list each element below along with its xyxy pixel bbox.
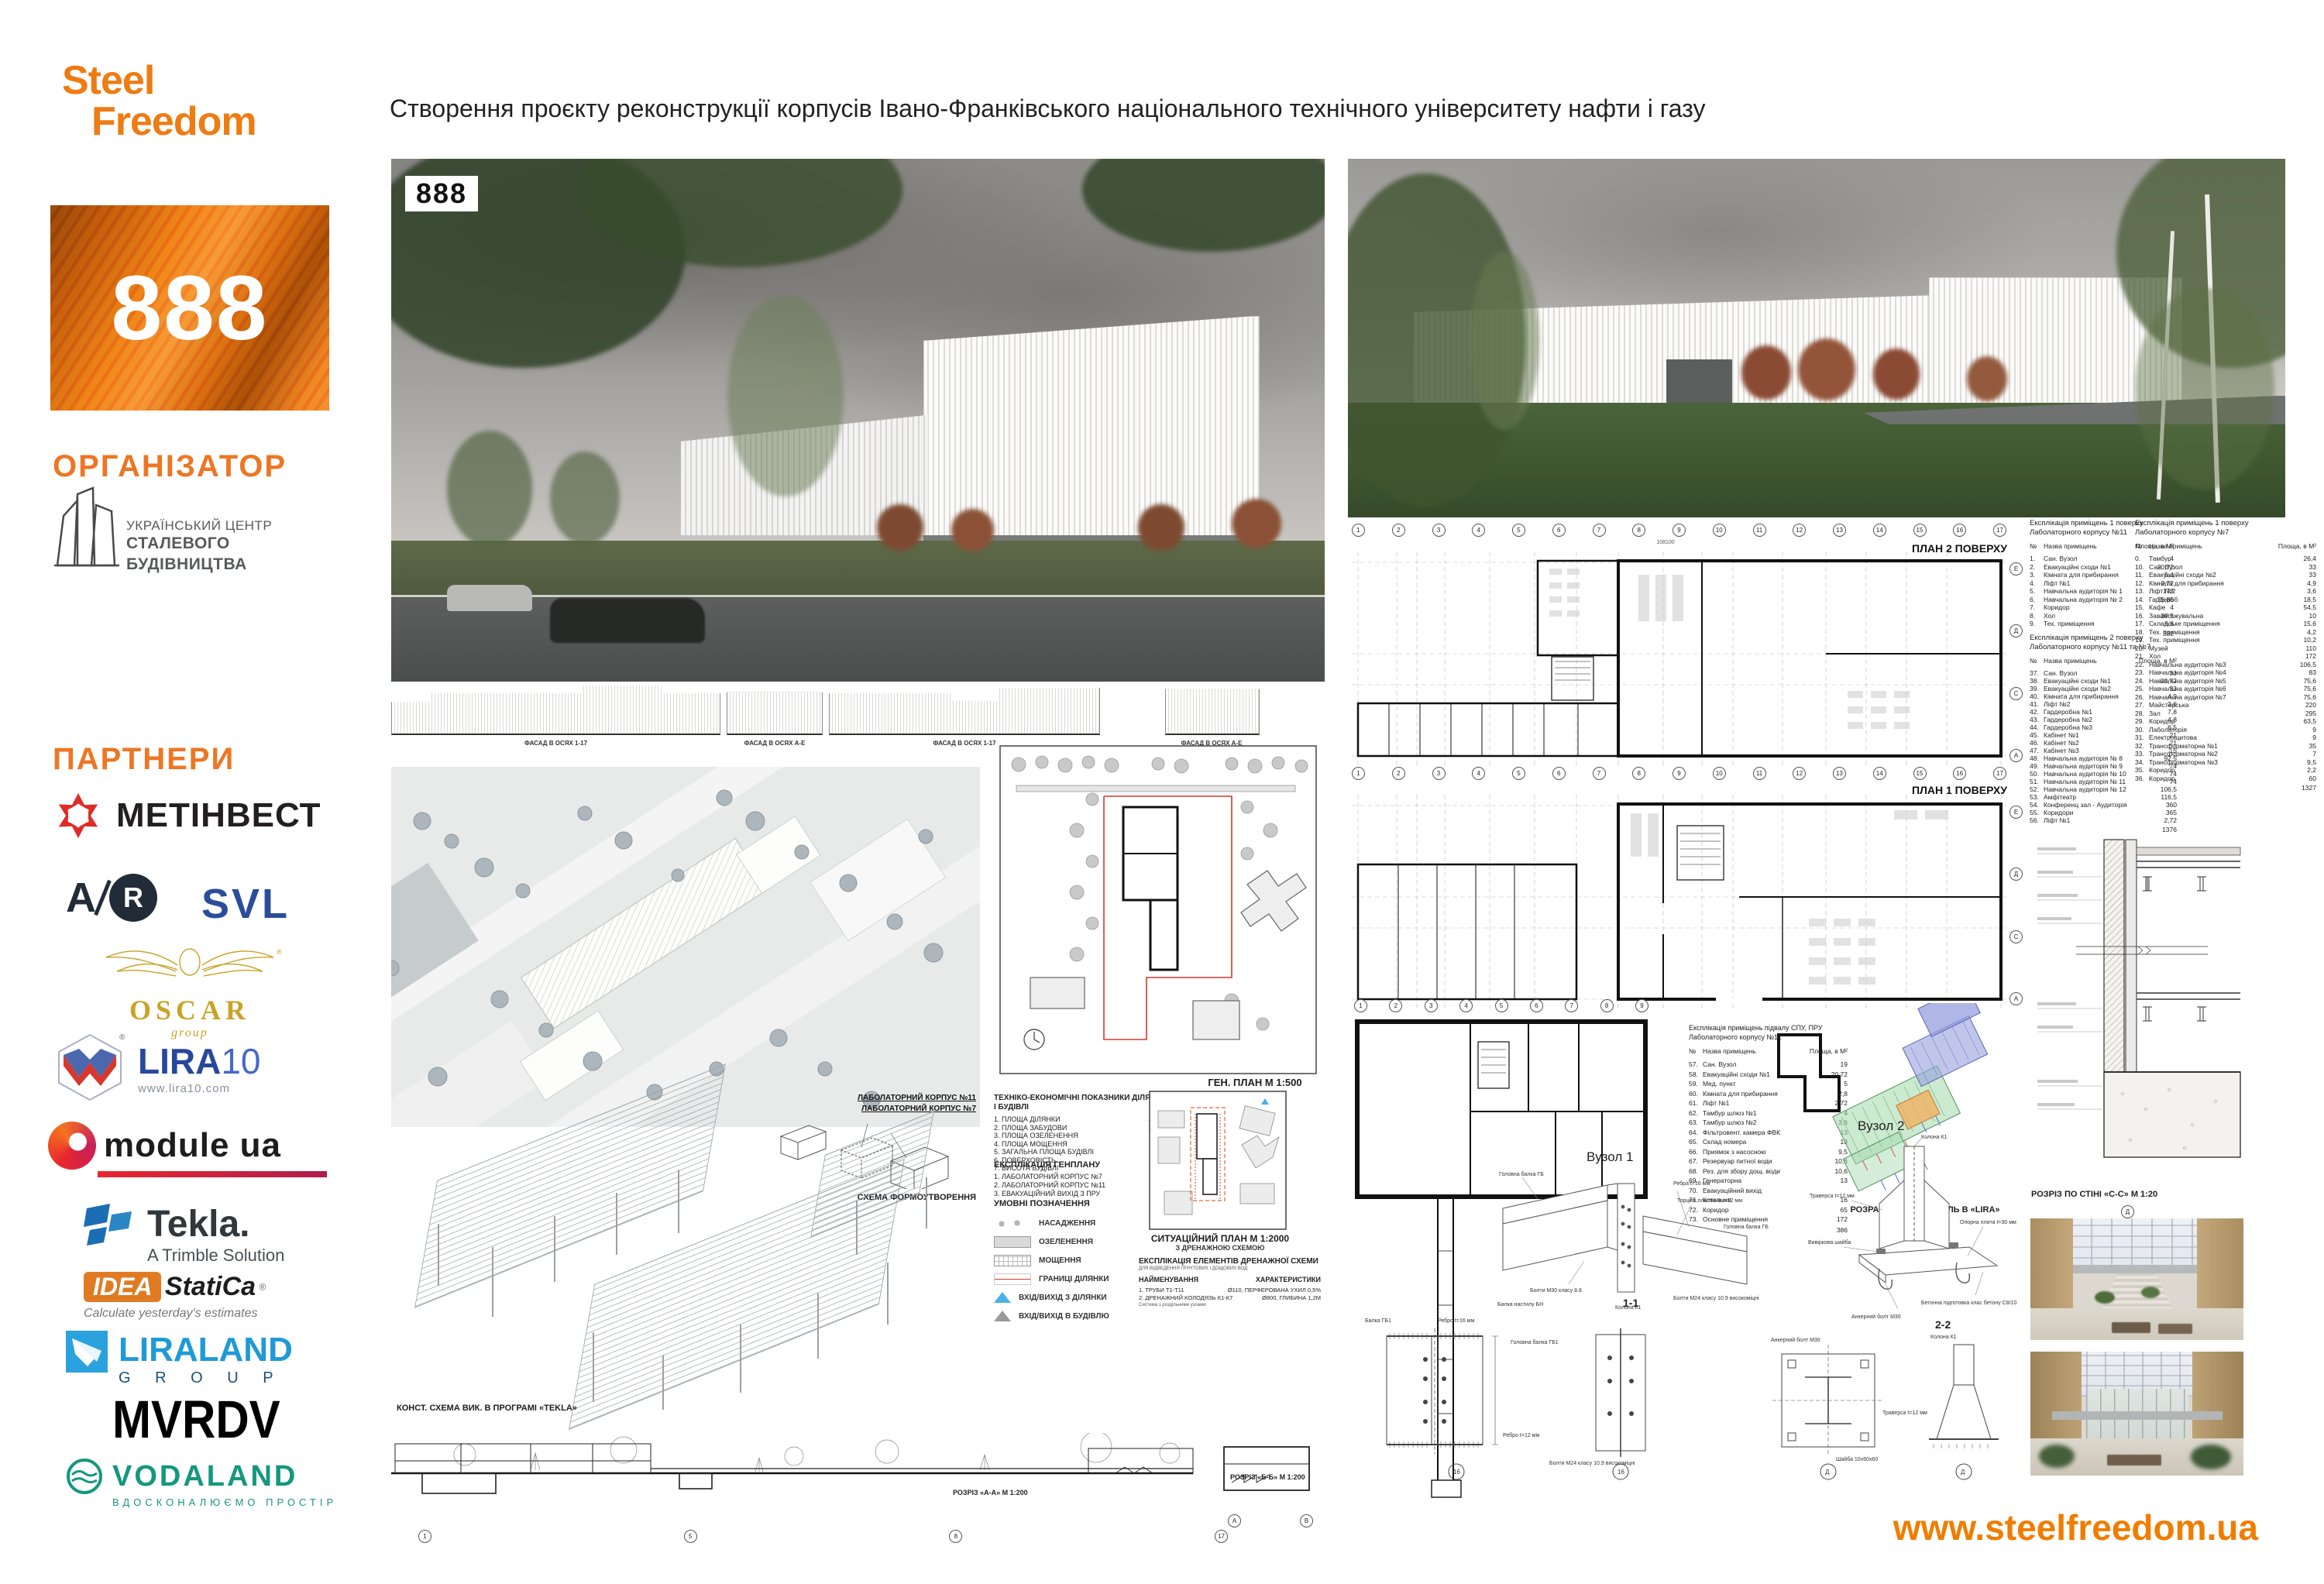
tree-small-2 bbox=[550, 452, 620, 545]
partner-ideastatica: IDEA StatiCa ® Calculate yesterday's est… bbox=[84, 1272, 266, 1321]
svg-text:Вивіркова шайба: Вивіркова шайба bbox=[1808, 1239, 1851, 1246]
plan1-grid-bubbles: 1234567891011121314151617 bbox=[1352, 767, 2006, 780]
general-plan-drawing bbox=[999, 745, 1317, 1074]
tree-mid bbox=[727, 295, 844, 497]
axonometric-site-model bbox=[391, 767, 980, 1127]
liraland-group-label: G R O U P bbox=[119, 1369, 293, 1387]
schedule-row: 45.Кабінет №121 bbox=[2030, 731, 2177, 739]
schedule-row: 56.Ліфт №12,72 bbox=[2030, 816, 2177, 824]
organizer-name: УКРАЇНСЬКИЙ ЦЕНТР СТАЛЕВОГО БУДІВНИЦТВА bbox=[126, 517, 272, 575]
drainage-row: 2. ДРЕНАЖНИЙ КОЛОДЯЗЬ К1-К7Ø800, ГЛИБИНА… bbox=[1139, 1294, 1321, 1302]
floor2-rows: 37.Сан. Вузол3338.Евакуаційні сходи №120… bbox=[2030, 669, 2177, 824]
schedule-row: 41.Ліфт №23,6 bbox=[2030, 700, 2177, 708]
schedule-row: 39.Евакуаційні сходи №233 bbox=[2030, 685, 2177, 692]
elevation-4: ФАСАД В ОСЯХ А-Е bbox=[1106, 682, 1317, 747]
legend-entry-building-icon bbox=[994, 1311, 1011, 1321]
organizer-line2: СТАЛЕВОГО bbox=[126, 534, 230, 552]
schedule-row: 38.Евакуаційні сходи №120,72 bbox=[2030, 677, 2177, 685]
liraland-label: LIRALAND bbox=[119, 1331, 293, 1369]
tekla-structural-scheme bbox=[391, 1108, 968, 1414]
render2-red-tree-2 bbox=[1798, 338, 1855, 400]
schedule-row: 37.Сан. Вузол33 bbox=[2030, 669, 2177, 677]
schedule-row: 11.Евакуаційні сходи №233 bbox=[2135, 571, 2316, 579]
svg-text:Балка настилу БН: Балка настилу БН bbox=[1497, 1302, 1543, 1307]
organizer-line3: БУДІВНИЦТВА bbox=[126, 555, 247, 573]
svg-text:Опорна плита t=30 мм: Опорна плита t=30 мм bbox=[1960, 1220, 2016, 1225]
schedule-row: 0.Тамбур26,4 bbox=[2135, 555, 2316, 563]
logo-line1: Steel bbox=[62, 58, 154, 103]
legend-swatch-trees bbox=[994, 1218, 1031, 1229]
schedule-row: 17.Складське приміщення15,6 bbox=[2135, 620, 2316, 628]
schedule-row: 49.Навчальна аудиторія № 974 bbox=[2030, 762, 2177, 770]
svg-text:Балка ГБ1: Балка ГБ1 bbox=[1365, 1318, 1391, 1324]
interior-render-2 bbox=[2030, 1352, 2243, 1476]
avr-circle-r: R bbox=[109, 874, 157, 922]
atrium1-bridge bbox=[2073, 1265, 2197, 1273]
tekla-scheme-caption: КОНСТ. СХЕМА ВИК. В ПРОГРАМІ «TEKLA» bbox=[397, 1404, 577, 1413]
svg-text:Болти М24 класу 10.9 високоміц: Болти М24 класу 10.9 високоміцні bbox=[1549, 1460, 1635, 1466]
tekla-icon bbox=[84, 1202, 135, 1246]
vodaland-tagline: ВДОСКОНАЛЮЄМО ПРОСТІР bbox=[112, 1496, 337, 1508]
svg-text:Ребро t=16 мм: Ребро t=16 мм bbox=[1438, 1318, 1474, 1324]
partner-oscar: ® OSCAR group bbox=[81, 947, 298, 1040]
plan1-letter-bubbles: ЕДСА bbox=[2009, 806, 2023, 1005]
organizer-line1: УКРАЇНСЬКИЙ ЦЕНТР bbox=[126, 517, 272, 534]
section-aa-drawing bbox=[391, 1433, 1352, 1526]
form-scheme-label-k11: ЛАБОЛАТОРНИЙ КОРПУС №11 bbox=[775, 1094, 976, 1102]
svg-text:Д: Д bbox=[1961, 1469, 1965, 1476]
svg-text:Траверса t=12 мм: Траверса t=12 мм bbox=[1810, 1194, 1855, 1199]
schedule-row: 46.Кабінет №221 bbox=[2030, 739, 2177, 747]
genplan-caption: ГЕН. ПЛАН М 1:500 bbox=[1177, 1077, 1332, 1088]
render2-tree-left2 bbox=[1470, 252, 1539, 430]
render2-red-tree-3 bbox=[1873, 349, 1920, 400]
elevation-1: ФАСАД В ОСЯХ 1-17 bbox=[391, 682, 720, 747]
partner-avr: A R bbox=[66, 874, 157, 922]
floor-plan-1-drawing bbox=[1352, 795, 2006, 1012]
section-bb-caption: РОЗРІЗ «Б-Б» М 1:200 bbox=[1230, 1473, 1305, 1481]
detail-22-label: 2-2 bbox=[1935, 1318, 1951, 1331]
red-tree-3 bbox=[1138, 504, 1184, 551]
drainage-note: Система з роздільними узлами bbox=[1139, 1303, 1321, 1307]
lira10-cube-icon: ® bbox=[54, 1032, 125, 1103]
steel-freedom-logo: Steel Freedom bbox=[62, 60, 256, 143]
elevation-3: ФАСАД В ОСЯХ 1-17 bbox=[829, 682, 1100, 747]
svg-text:Головна балка ГБ: Головна балка ГБ bbox=[1724, 1224, 1769, 1230]
atrium2-tables bbox=[2107, 1455, 2161, 1465]
plan2-grid-bubbles: 1234567891011121314151617 bbox=[1352, 524, 2006, 537]
tekla-sub: A Trimble Solution bbox=[147, 1246, 284, 1266]
wall-section-bubble: Д bbox=[2121, 1205, 2134, 1218]
render2-birch-leaves bbox=[2135, 288, 2274, 490]
schedule-row: 14.Гардероб18,5 bbox=[2135, 596, 2316, 604]
section-bb-bubbles: АВ bbox=[1228, 1514, 1313, 1527]
moduleua-label: module ua bbox=[104, 1126, 281, 1165]
legend-swatch-boundary bbox=[994, 1273, 1031, 1285]
red-tree-2 bbox=[951, 509, 994, 551]
oscar-label: OSCAR bbox=[81, 994, 298, 1026]
partner-liraland: LIRALAND G R O U P bbox=[66, 1331, 293, 1387]
render-team-overlay: 888 bbox=[405, 176, 478, 211]
avr-letter-a: A bbox=[66, 874, 96, 922]
svg-text:16: 16 bbox=[1453, 1469, 1460, 1476]
drainage-row: 1. ТРУБИ Т1-Т11Ø110, ПЕРФЕРОВАНА УХИЛ 0,… bbox=[1139, 1287, 1321, 1294]
partner-metinvest: МЕТІНВЕСТ bbox=[54, 792, 321, 840]
schedule-row: 52.Навчальна аудиторія № 12106,5 bbox=[2030, 785, 2177, 793]
situation-plan-caption: СИТУАЦІЙНИЙ ПЛАН М 1:2000 З ДРЕНАЖНОЮ СХ… bbox=[1139, 1233, 1301, 1252]
node1-title: Вузол 1 bbox=[1587, 1149, 1633, 1165]
plan2-letter-bubbles: ЕДСА bbox=[2009, 562, 2023, 762]
partner-moduleua: module ua bbox=[48, 1122, 327, 1177]
team-number: 888 bbox=[112, 256, 269, 361]
render2-red-tree-1 bbox=[1741, 345, 1791, 400]
legend-swatch-green bbox=[994, 1236, 1031, 1248]
car-silver bbox=[447, 585, 532, 611]
moduleua-bar bbox=[98, 1171, 327, 1177]
elevation-2: ФАСАД В ОСЯХ А-Е bbox=[727, 682, 823, 747]
svg-text:Д: Д bbox=[1825, 1469, 1830, 1476]
svg-text:Торцеві пластини t=12 мм: Торцеві пластини t=12 мм bbox=[1677, 1197, 1742, 1204]
floor-plan-2-drawing bbox=[1352, 551, 2006, 768]
svg-text:Колона К1: Колона К1 bbox=[1930, 1335, 1957, 1340]
schedule-row: 54.Конференц зал - Аудиторія360 bbox=[2030, 801, 2177, 809]
svg-text:Головна балка ГБ1: Головна балка ГБ1 bbox=[1511, 1339, 1559, 1345]
red-tree-4 bbox=[1232, 499, 1281, 548]
partner-svl: SVL bbox=[201, 880, 290, 928]
vodaland-label: VODALAND bbox=[112, 1460, 297, 1493]
svg-text:Колона К1: Колона К1 bbox=[1921, 1135, 1948, 1140]
partners-heading: ПАРТНЕРИ bbox=[53, 742, 235, 777]
render2-red-tree-4 bbox=[1967, 356, 2007, 401]
metinvest-star-icon bbox=[54, 792, 102, 840]
red-tree-1 bbox=[877, 504, 923, 551]
schedule-row: 10.Сан. Вузол33 bbox=[2135, 563, 2316, 572]
drainage-sub: ДЛЯ ВІДВЕДЕННЯ ҐРУНТОВИХ І ДОЩОВИХ ВОД bbox=[1139, 1266, 1321, 1271]
partner-lira10: ® LIRA10 www.lira10.com bbox=[54, 1032, 261, 1103]
svg-text:Бетонна підготовка клас бетону: Бетонна підготовка клас бетону С8/10 bbox=[1921, 1300, 2016, 1306]
svg-text:Анкерний болт М30: Анкерний болт М30 bbox=[1851, 1314, 1901, 1320]
lira-10: 10 bbox=[221, 1041, 260, 1081]
exterior-render-street: 888 bbox=[391, 159, 1325, 682]
svg-text:®: ® bbox=[277, 948, 282, 956]
schedule-row: 13.Ліфт №23,6 bbox=[2135, 587, 2316, 596]
exterior-render-lawn bbox=[1348, 159, 2285, 517]
node2-drawing: Колона К1 Траверса t=12 мм Вивіркова шай… bbox=[1805, 1132, 2030, 1322]
schedule-row: 12.Кімната для прибирання4,9 bbox=[2135, 579, 2316, 588]
basement-grid-bubbles: 123456789 bbox=[1354, 999, 1648, 1012]
plan2-total-dim: 108100 bbox=[1642, 540, 1689, 545]
wall-section-caption: РОЗРІЗ ПО СТІНІ «С-С» М 1:20 bbox=[2031, 1190, 2157, 1199]
detail-11-drawing: Балка ГБ1 Ребро t=16 мм Головна балка ГБ… bbox=[1363, 1313, 1697, 1483]
svg-text:16: 16 bbox=[1618, 1469, 1624, 1476]
situation-plan-drawing bbox=[1149, 1091, 1287, 1230]
oscar-wings-icon: ® bbox=[97, 947, 283, 990]
car-dark bbox=[550, 598, 705, 643]
render1-road bbox=[391, 598, 1325, 682]
idea-box-label: IDEA bbox=[84, 1272, 161, 1302]
node2-title: Вузол 2 bbox=[1858, 1118, 1904, 1134]
idea-reg: ® bbox=[260, 1282, 266, 1293]
lira-url: www.lira10.com bbox=[138, 1082, 261, 1095]
schedule-row: 50.Навчальна аудиторія № 1074 bbox=[2030, 770, 2177, 778]
atrium1-plant-1 bbox=[2095, 1291, 2115, 1304]
poster-title: Створення проєкту реконструкції корпусів… bbox=[390, 94, 2016, 123]
atrium1-tables bbox=[2112, 1322, 2150, 1333]
statica-label: StatiCa bbox=[165, 1272, 256, 1301]
atrium2-plant-right bbox=[2191, 1445, 2231, 1469]
section-aa-caption: РОЗРІЗ «А-А» М 1:200 bbox=[953, 1489, 1028, 1496]
schedule-row: 42.Гардеробна №17,8 bbox=[2030, 708, 2177, 716]
svg-text:Траверса t=12 мм: Траверса t=12 мм bbox=[1882, 1410, 1927, 1416]
wall-section-drawing bbox=[2030, 830, 2254, 1183]
svg-text:Шайба 10x60x60: Шайба 10x60x60 bbox=[1836, 1456, 1878, 1462]
schedule-row: 16.Завантажувальна10 bbox=[2135, 612, 2316, 620]
svg-text:Болти М24 класу 10.9 високоміц: Болти М24 класу 10.9 високоміцні bbox=[1673, 1295, 1759, 1301]
team-badge: 888 bbox=[50, 205, 329, 411]
schedule-row: 53.Амфітеатр116,5 bbox=[2030, 793, 2177, 801]
svg-text:Ребро t=12 мм: Ребро t=12 мм bbox=[1503, 1432, 1539, 1438]
interior-render-1 bbox=[2030, 1218, 2243, 1340]
schedule-row: 51.Навчальна аудиторія № 1174 bbox=[2030, 778, 2177, 785]
schedule-row: 47.Кабінет №315 bbox=[2030, 747, 2177, 754]
schedule-row: 55.Коридори365 bbox=[2030, 809, 2177, 816]
organizer-heading: ОРГАНІЗАТОР bbox=[53, 449, 287, 484]
elevation-1-caption: ФАСАД В ОСЯХ 1-17 bbox=[391, 740, 720, 747]
atrium2-bridge bbox=[2052, 1411, 2223, 1420]
schedule-row: 40.Кімната для прибирання4,9 bbox=[2030, 692, 2177, 700]
legend-swatch-paving bbox=[994, 1255, 1031, 1266]
vodaland-icon bbox=[66, 1458, 103, 1495]
logo-line2: Freedom bbox=[91, 101, 256, 143]
website-url: www.steelfreedom.ua bbox=[1739, 1507, 2258, 1548]
legend-entry-site-icon bbox=[994, 1292, 1011, 1303]
node1-drawing: Головна балка ГБ Ребра t=16 мм Торцеві п… bbox=[1491, 1168, 1786, 1315]
elevation-2-caption: ФАСАД В ОСЯХ А-Е bbox=[727, 740, 823, 747]
moduleua-icon bbox=[48, 1122, 96, 1170]
drainage-explication: ЕКСПЛІКАЦІЯ ЕЛЕМЕНТІВ ДРЕНАЖНОЇ СХЕМИ ДЛ… bbox=[1139, 1256, 1321, 1307]
svg-text:Анкерний болт М30: Анкерний болт М30 bbox=[1771, 1337, 1820, 1343]
partner-tekla: Tekla. A Trimble Solution bbox=[84, 1202, 284, 1266]
tree-small-1 bbox=[447, 431, 532, 547]
lira-label: LIRA bbox=[138, 1041, 221, 1081]
room-schedule-floor2: Експлікація приміщень 2 поверху Лаболато… bbox=[2030, 634, 2177, 833]
atrium1-tables-2 bbox=[2158, 1324, 2192, 1334]
svg-text:®: ® bbox=[119, 1033, 125, 1042]
atrium1-plant-2 bbox=[2141, 1287, 2160, 1298]
svg-text:Болти М30 класу 8.8: Болти М30 класу 8.8 bbox=[1530, 1288, 1582, 1294]
idea-tagline: Calculate yesterday's estimates bbox=[84, 1307, 266, 1321]
liraland-icon bbox=[66, 1331, 108, 1373]
competition-poster: Steel Freedom Створення проєкту реконстр… bbox=[0, 0, 2324, 1584]
svg-text:Ребра t=16 мм: Ребра t=16 мм bbox=[1673, 1180, 1710, 1187]
partner-vodaland: VODALAND ВДОСКОНАЛЮЄМО ПРОСТІР bbox=[66, 1458, 337, 1508]
metinvest-label: МЕТІНВЕСТ bbox=[116, 796, 321, 835]
detail-22-drawing: Колона К1 Анкерний болт М30 Траверса t=1… bbox=[1766, 1331, 2033, 1490]
schedule-row: 15.Кафе54,5 bbox=[2135, 603, 2316, 612]
schedule-row: 48.Навчальна аудиторія № 892,5 bbox=[2030, 754, 2177, 762]
partner-mvrdv: MVRDV bbox=[112, 1389, 280, 1450]
detail-11-label: 1-1 bbox=[1623, 1297, 1638, 1309]
drainage-rows: 1. ТРУБИ Т1-Т11Ø110, ПЕРФЕРОВАНА УХИЛ 0,… bbox=[1139, 1287, 1321, 1301]
schedule-row: 44.Гардеробна №36,5 bbox=[2030, 723, 2177, 731]
drainage-title: ЕКСПЛІКАЦІЯ ЕЛЕМЕНТІВ ДРЕНАЖНОЇ СХЕМИ bbox=[1139, 1256, 1321, 1266]
section-aa-bubbles: 15817 bbox=[418, 1530, 1228, 1543]
tekla-label: Tekla. bbox=[147, 1203, 250, 1246]
schedule-row: 43.Гардеробна №24,8 bbox=[2030, 716, 2177, 723]
ucsb-logo-icon bbox=[51, 485, 122, 570]
svg-text:Головна балка ГБ: Головна балка ГБ bbox=[1499, 1171, 1544, 1177]
